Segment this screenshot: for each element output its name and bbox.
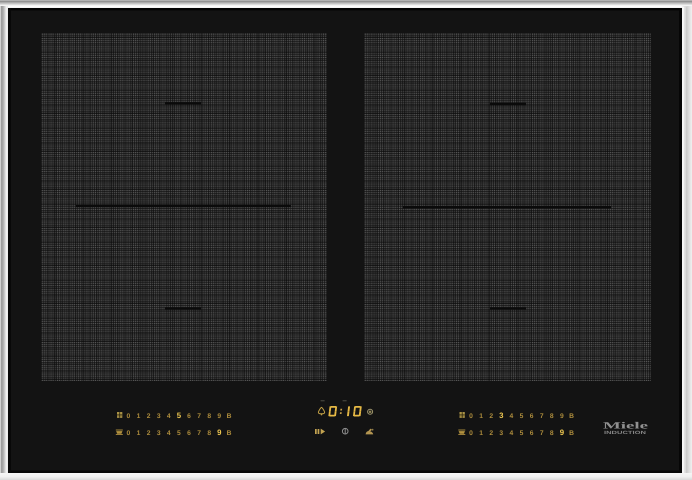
- svg-text:3: 3: [157, 413, 161, 420]
- svg-text:2: 2: [489, 413, 493, 420]
- svg-text:9: 9: [560, 413, 564, 420]
- svg-text:5: 5: [520, 430, 524, 437]
- svg-text:9: 9: [217, 413, 221, 420]
- svg-text:0: 0: [469, 413, 473, 420]
- svg-text:7: 7: [540, 430, 544, 437]
- svg-text:5: 5: [177, 430, 181, 437]
- svg-text:B: B: [569, 413, 574, 420]
- svg-text:9: 9: [560, 428, 565, 437]
- svg-text:6: 6: [187, 430, 191, 437]
- svg-text:B: B: [227, 413, 232, 420]
- svg-text:8: 8: [207, 430, 211, 437]
- svg-text:B: B: [227, 430, 232, 437]
- svg-text:6: 6: [530, 430, 534, 437]
- svg-text:8: 8: [550, 430, 554, 437]
- svg-text:5: 5: [177, 411, 182, 420]
- svg-text:5: 5: [520, 413, 524, 420]
- svg-text:9: 9: [217, 428, 222, 437]
- svg-text:0: 0: [127, 413, 131, 420]
- svg-text:INDUCTION: INDUCTION: [604, 430, 647, 435]
- svg-text:6: 6: [530, 413, 534, 420]
- svg-text:3: 3: [499, 411, 504, 420]
- svg-text:1: 1: [137, 430, 141, 437]
- svg-text:7: 7: [197, 413, 201, 420]
- svg-text:4: 4: [510, 413, 514, 420]
- svg-text:7: 7: [197, 430, 201, 437]
- svg-text:8: 8: [550, 413, 554, 420]
- svg-text:4: 4: [510, 430, 514, 437]
- svg-text:6: 6: [187, 413, 191, 420]
- svg-text:2: 2: [147, 430, 151, 437]
- svg-text:1: 1: [479, 430, 483, 437]
- svg-text:4: 4: [167, 430, 171, 437]
- svg-text:1: 1: [479, 413, 483, 420]
- svg-text:3: 3: [499, 430, 503, 437]
- svg-text:0: 0: [127, 430, 131, 437]
- svg-text:2: 2: [489, 430, 493, 437]
- svg-text:2: 2: [147, 413, 151, 420]
- svg-text:8: 8: [207, 413, 211, 420]
- svg-text:4: 4: [167, 413, 171, 420]
- svg-text:0: 0: [469, 430, 473, 437]
- svg-text:1: 1: [137, 413, 141, 420]
- svg-text:3: 3: [157, 430, 161, 437]
- svg-text:B: B: [569, 430, 574, 437]
- svg-text:7: 7: [540, 413, 544, 420]
